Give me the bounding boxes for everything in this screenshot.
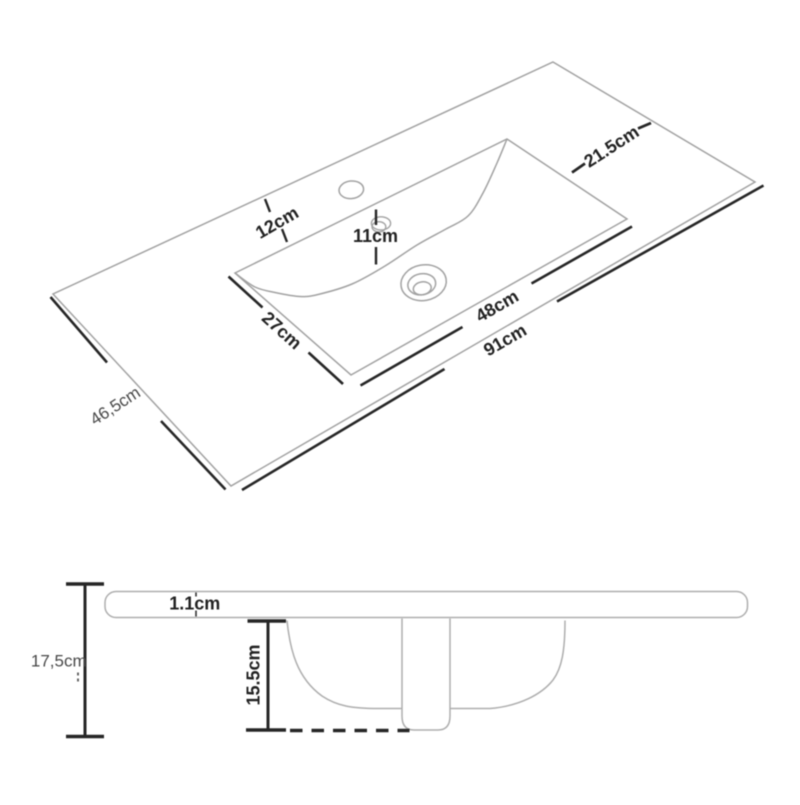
svg-text:15.5cm: 15.5cm <box>244 644 264 705</box>
svg-text:1.1cm: 1.1cm <box>169 594 220 614</box>
svg-text:17,5cm: 17,5cm <box>31 652 87 671</box>
svg-text:11cm: 11cm <box>353 226 398 246</box>
